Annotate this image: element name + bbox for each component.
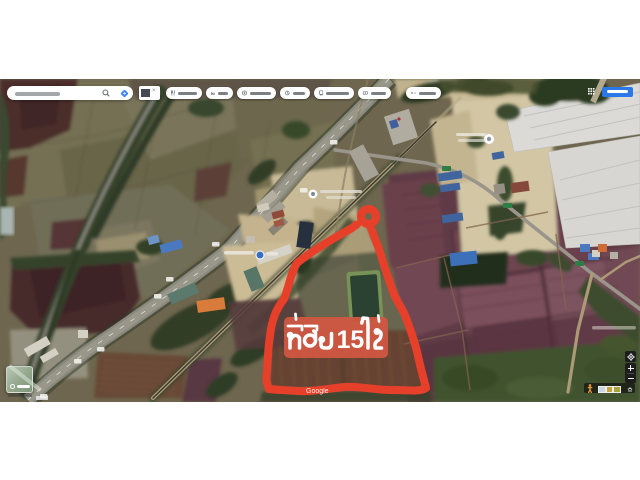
- svg-text:15: 15: [337, 326, 365, 354]
- svg-text:Google: Google: [306, 388, 329, 395]
